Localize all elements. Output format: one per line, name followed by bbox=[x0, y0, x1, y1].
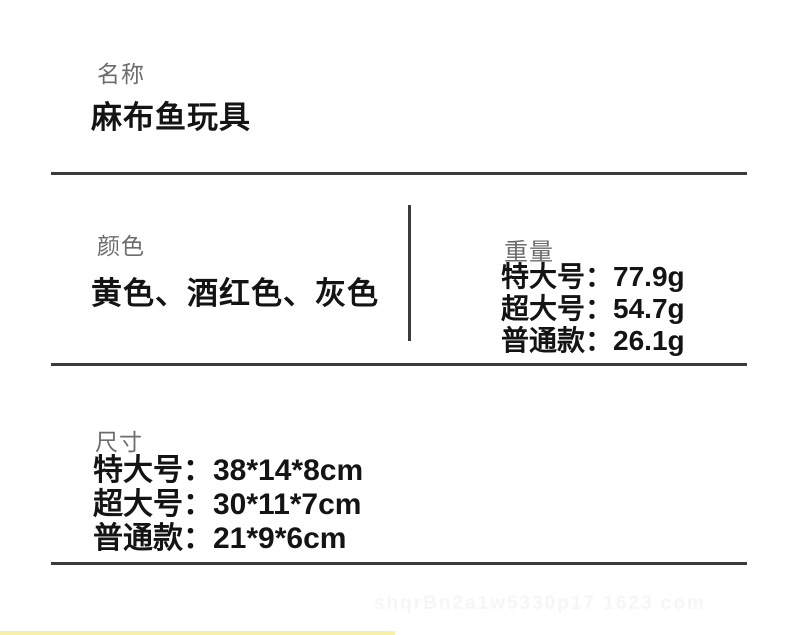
size-row-l-label: 超大号： bbox=[93, 488, 213, 521]
weight-row-xl-value: 77.9g bbox=[613, 261, 685, 292]
size-row-regular-label: 普通款： bbox=[93, 522, 213, 555]
weight-row-l-value: 54.7g bbox=[613, 293, 685, 324]
size-row-l-value: 30*11*7cm bbox=[213, 488, 361, 521]
product-name: 麻布鱼玩具 bbox=[91, 92, 251, 137]
size-row-xl-label: 特大号： bbox=[93, 454, 213, 487]
divider-bottom bbox=[51, 562, 747, 565]
size-row-regular: 普通款：21*9*6cm bbox=[93, 522, 363, 556]
weight-row-regular-value: 26.1g bbox=[613, 325, 685, 356]
divider-top bbox=[51, 172, 747, 175]
size-row-l: 超大号：30*11*7cm bbox=[93, 488, 363, 522]
color-options-text: 黄色、酒红色、灰色 bbox=[91, 268, 379, 313]
size-section-label: 尺寸 bbox=[95, 423, 143, 457]
bottom-yellow-strip bbox=[0, 631, 395, 635]
name-section-label: 名称 bbox=[97, 55, 145, 89]
weight-row-regular-label: 普通款： bbox=[501, 325, 613, 356]
weight-row-l-label: 超大号： bbox=[501, 293, 613, 324]
divider-vertical bbox=[408, 205, 411, 341]
product-spec-card: 名称 麻布鱼玩具 颜色 黄色、酒红色、灰色 重量 特大号：77.9g 超大号：5… bbox=[0, 0, 790, 635]
size-row-xl: 特大号：38*14*8cm bbox=[93, 454, 363, 488]
divider-middle bbox=[51, 363, 747, 366]
size-row-xl-value: 38*14*8cm bbox=[213, 454, 363, 487]
weight-row-l: 超大号：54.7g bbox=[501, 293, 685, 325]
color-section-label: 颜色 bbox=[97, 227, 145, 261]
weight-row-xl: 特大号：77.9g bbox=[501, 261, 685, 293]
weight-rows: 特大号：77.9g 超大号：54.7g 普通款：26.1g bbox=[501, 261, 685, 357]
size-rows: 特大号：38*14*8cm 超大号：30*11*7cm 普通款：21*9*6cm bbox=[93, 454, 363, 556]
size-row-regular-value: 21*9*6cm bbox=[213, 522, 346, 555]
faint-watermark-text: shqrBn2a1w5330p17 1623 com bbox=[374, 593, 774, 615]
weight-row-xl-label: 特大号： bbox=[501, 261, 613, 292]
weight-row-regular: 普通款：26.1g bbox=[501, 325, 685, 357]
